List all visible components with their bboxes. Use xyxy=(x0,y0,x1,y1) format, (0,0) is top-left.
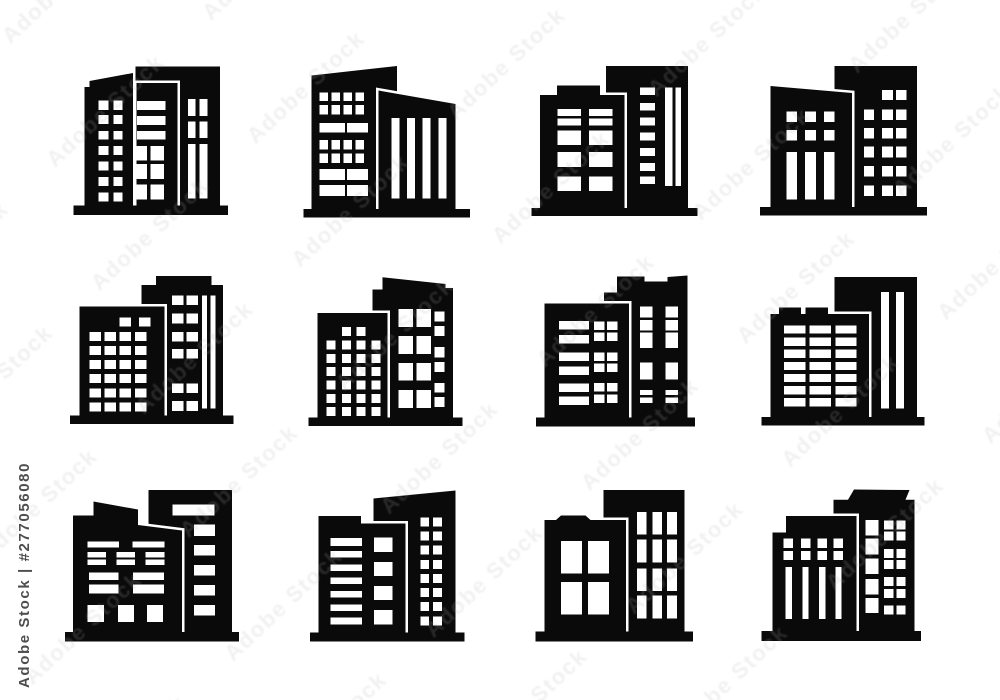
svg-text:Adobe Stock | #277056080: Adobe Stock | #277056080 xyxy=(16,462,33,688)
